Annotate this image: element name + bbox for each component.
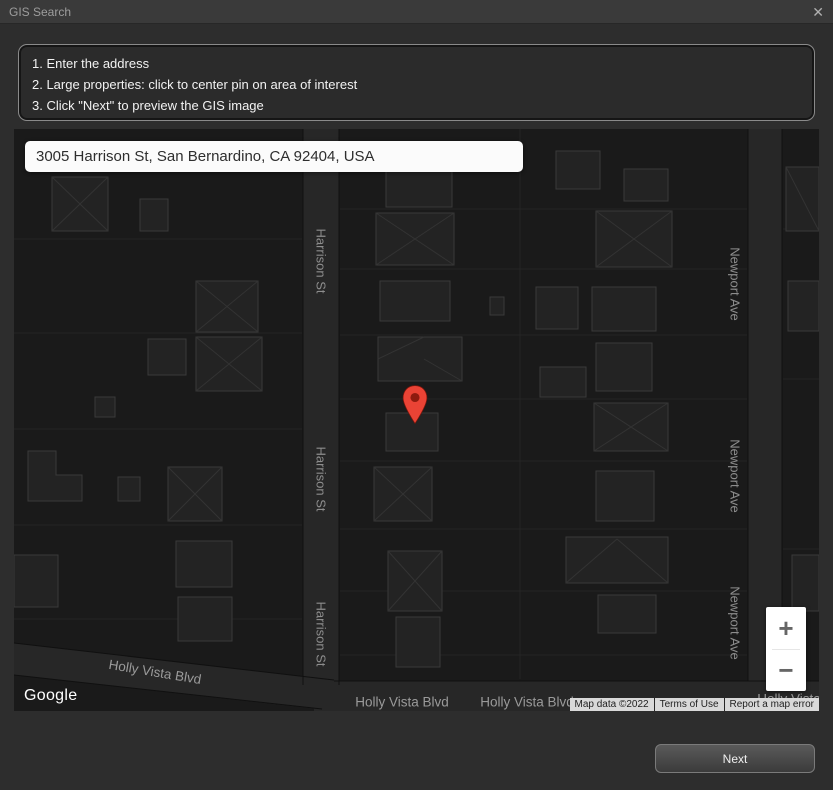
map-pin [401,384,429,425]
next-button[interactable]: Next [655,744,815,773]
zoom-out-icon[interactable]: − [766,650,806,692]
zoom-control: + − [766,607,806,691]
instruction-step-3: 3. Click "Next" to preview the GIS image [32,95,801,116]
google-logo[interactable]: Google [24,687,77,705]
close-icon[interactable]: ✕ [812,5,824,19]
report-map-error-link[interactable]: Report a map error [725,698,819,711]
instruction-step-1: 1. Enter the address [32,53,801,74]
map-attribution: Map data ©2022 Terms of Use Report a map… [570,698,819,711]
instruction-step-2: 2. Large properties: click to center pin… [32,74,801,95]
address-input[interactable] [25,141,523,172]
map-data-copyright: Map data ©2022 [570,698,654,711]
dialog-footer: Next [0,711,833,789]
terms-of-use-link[interactable]: Terms of Use [655,698,724,711]
window-titlebar: GIS Search ✕ [0,0,833,24]
zoom-in-icon[interactable]: + [766,607,806,649]
instructions-box: 1. Enter the address 2. Large properties… [18,44,815,121]
map-container[interactable]: Harrison St Harrison St Harrison St Newp… [14,129,819,711]
window-title: GIS Search [9,5,71,19]
